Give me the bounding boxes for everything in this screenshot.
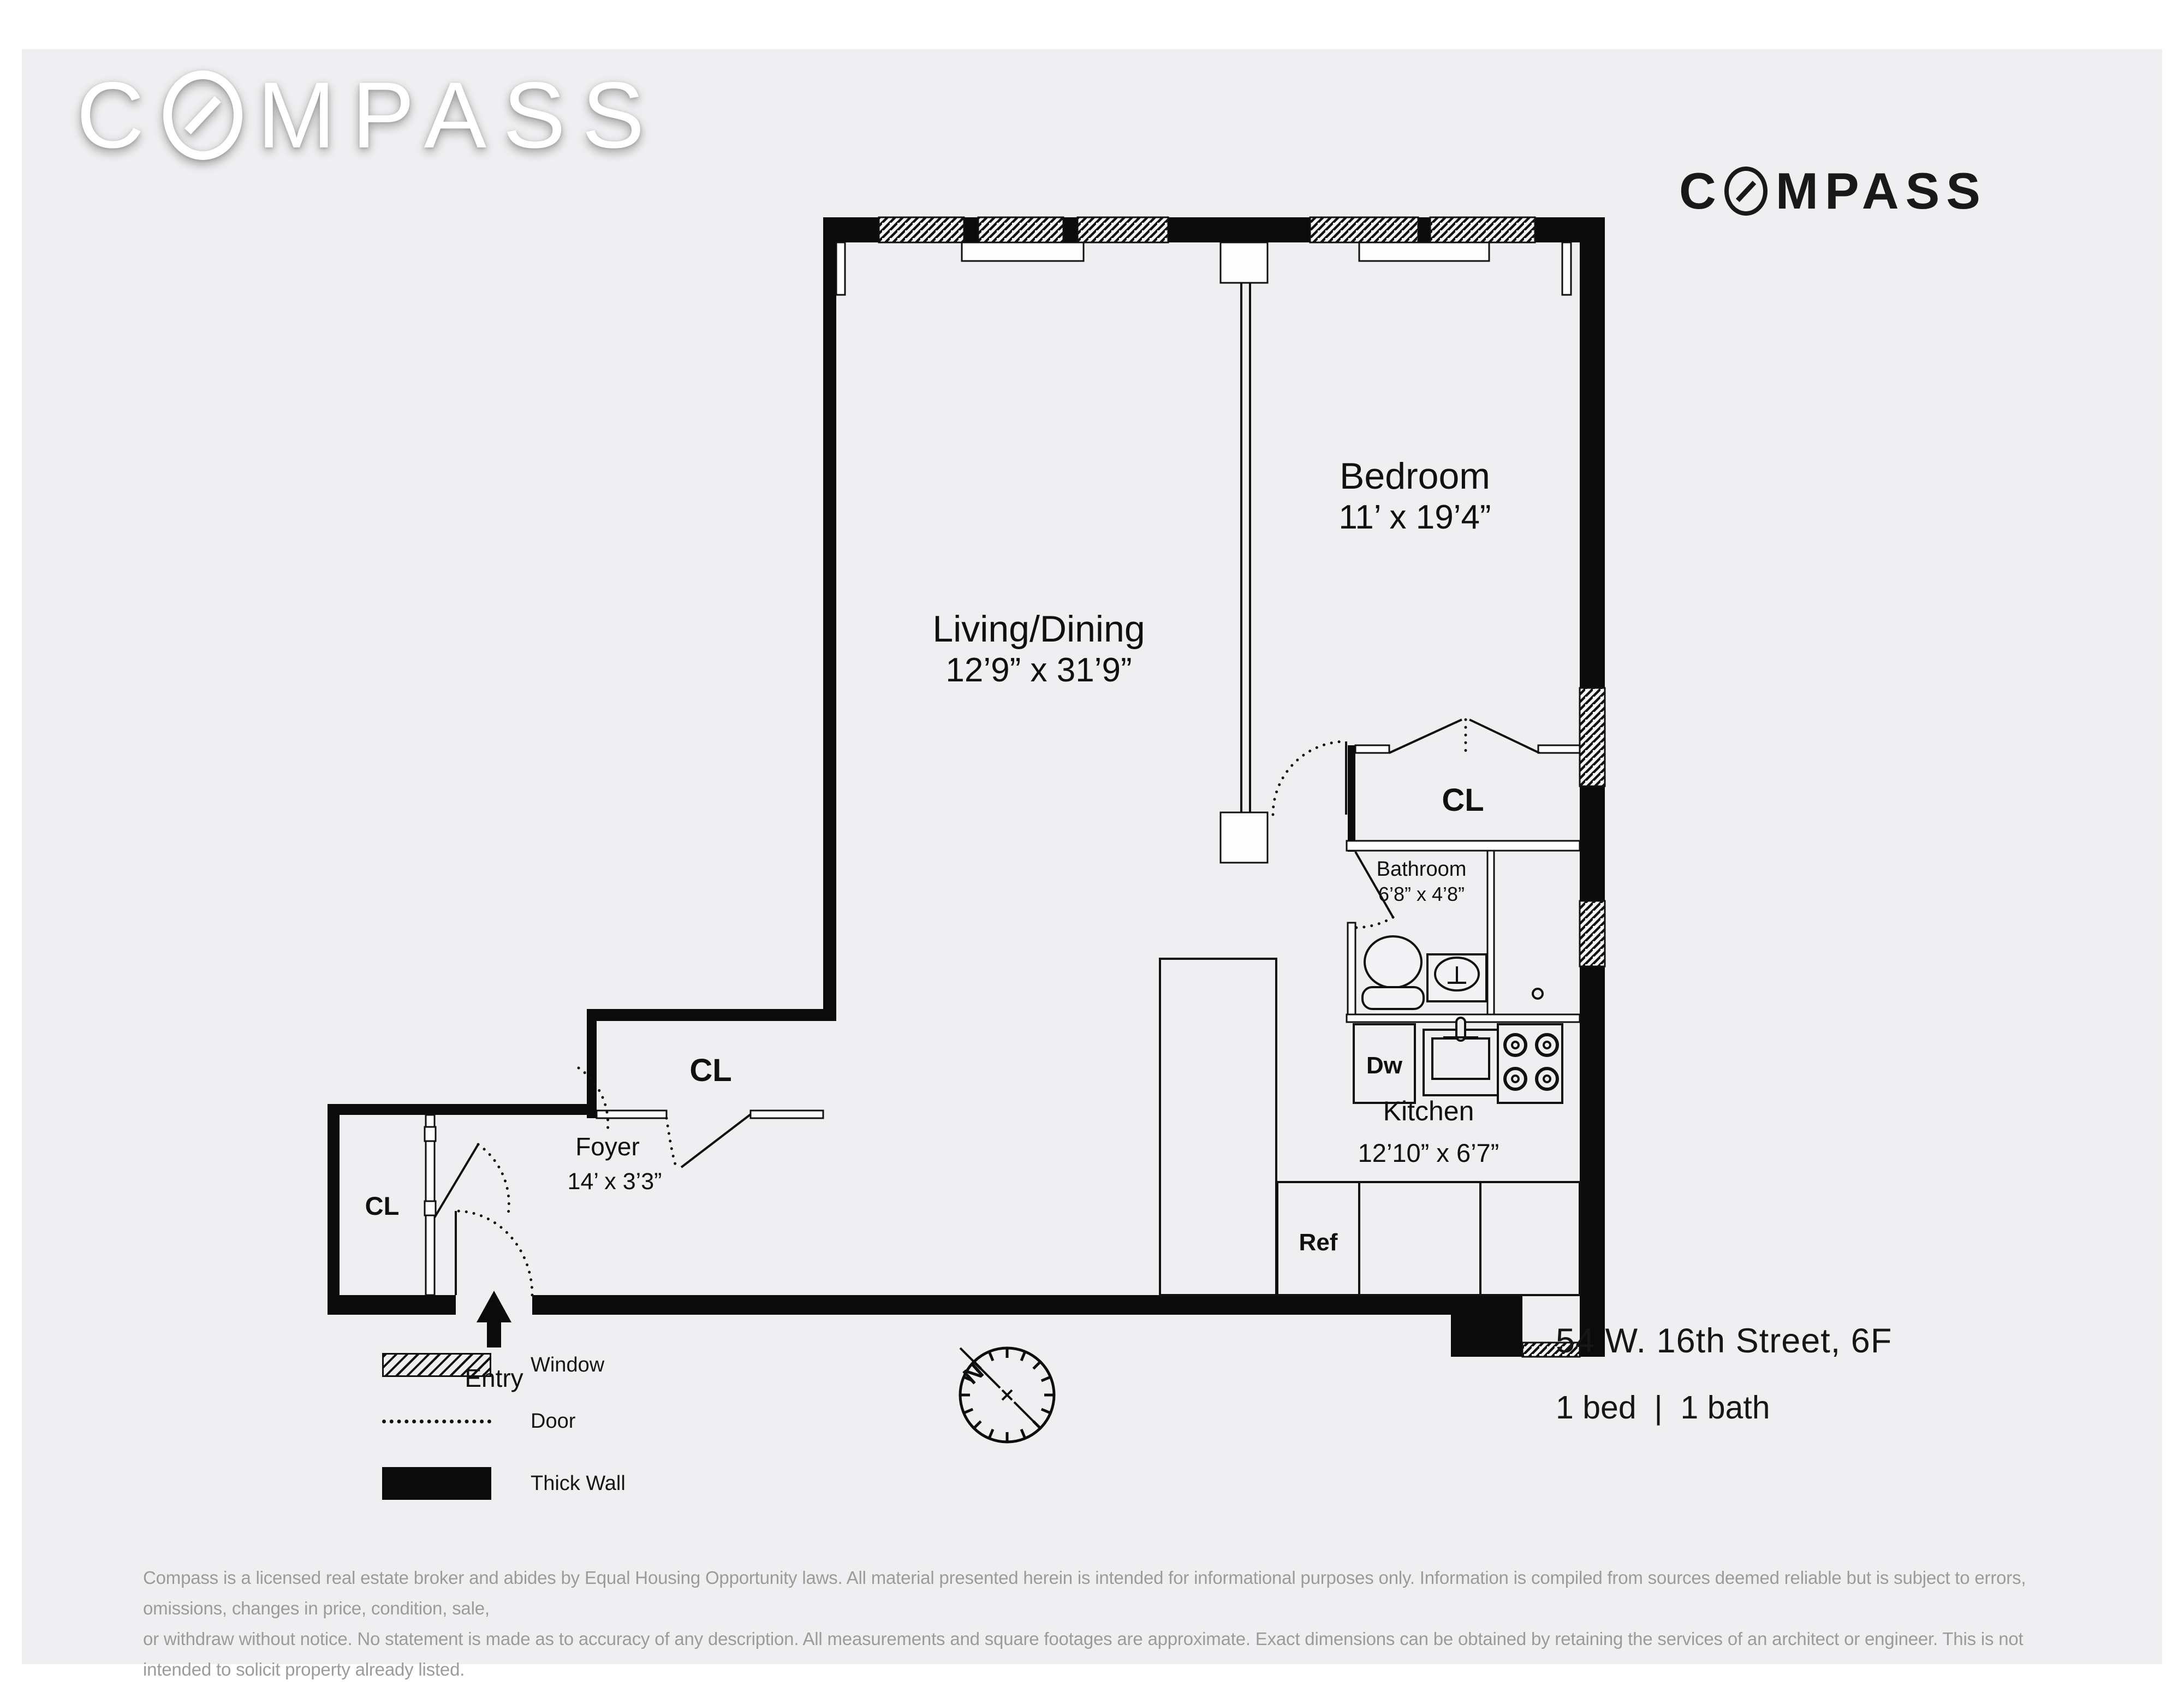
closet-door-swing bbox=[478, 1144, 509, 1218]
door-swatch-icon bbox=[382, 1420, 491, 1423]
legend-row-door: Door bbox=[382, 1410, 626, 1433]
bathroom-door-swing bbox=[1355, 917, 1393, 928]
logo-text-pre: C bbox=[1679, 162, 1723, 221]
legend-label: Thick Wall bbox=[531, 1472, 626, 1495]
foyer-dims: 14’ x 3’3” bbox=[568, 1168, 662, 1195]
window-icon bbox=[1078, 217, 1168, 242]
logo-text-pre: C bbox=[76, 61, 160, 169]
closet-bifold-leaf bbox=[1389, 720, 1462, 753]
floor-plan: Living/Dining 12’9” x 31’9” Bedroom 11’ … bbox=[317, 207, 1616, 1436]
bathroom-fixtures bbox=[1362, 936, 1543, 1009]
kitchen-dims: 12’10” x 6’7” bbox=[1358, 1138, 1499, 1167]
closet-bifold-leaf bbox=[1469, 720, 1539, 753]
closet-label: CL bbox=[1442, 782, 1484, 818]
living-room-label: Living/Dining bbox=[932, 608, 1145, 650]
kitchen-sink-basin bbox=[1432, 1038, 1489, 1079]
refrigerator-label: Ref bbox=[1299, 1229, 1338, 1256]
counter-peninsula bbox=[1160, 959, 1276, 1295]
window-icon bbox=[1430, 217, 1535, 242]
closet-door-leaf bbox=[435, 1144, 478, 1218]
compass-rose-icon: N bbox=[947, 1335, 1067, 1455]
bedroom-door-swing bbox=[1273, 741, 1346, 815]
window-icon bbox=[1580, 688, 1605, 786]
compass-logo-small: CMPASS bbox=[1679, 162, 1987, 221]
window-icon bbox=[1310, 217, 1418, 242]
listing-info: 54 W. 16th Street, 6F 1 bed | 1 bath bbox=[1556, 1321, 1892, 1426]
logo-text-post: MPASS bbox=[257, 61, 660, 169]
counter-box bbox=[1359, 1182, 1480, 1295]
listing-beds-baths: 1 bed | 1 bath bbox=[1556, 1389, 1892, 1426]
window-icon bbox=[879, 217, 964, 242]
entry-arrow-icon bbox=[477, 1291, 511, 1347]
toilet-tank bbox=[1362, 987, 1424, 1009]
compass-logo-large: CMPASS bbox=[76, 61, 661, 169]
foyer-label: Foyer bbox=[575, 1132, 640, 1161]
legend-row-thick-wall: Thick Wall bbox=[382, 1467, 626, 1500]
bathroom-label: Bathroom bbox=[1377, 858, 1467, 881]
room-labels: Living/Dining 12’9” x 31’9” Bedroom 11’ … bbox=[365, 455, 1499, 1392]
closet-label: CL bbox=[365, 1191, 400, 1220]
closet-label: CL bbox=[689, 1053, 731, 1088]
window-icon bbox=[978, 217, 1063, 242]
closet-door-swing bbox=[666, 1118, 676, 1166]
logo-text-post: MPASS bbox=[1776, 162, 1987, 221]
disclaimer-line-1: Compass is a licensed real estate broker… bbox=[143, 1563, 2054, 1624]
living-room-dims: 12’9” x 31’9” bbox=[945, 651, 1132, 689]
entry-door-swing bbox=[456, 1211, 532, 1295]
slashed-o-icon bbox=[163, 70, 242, 159]
logo-o-slash-icon bbox=[185, 96, 221, 134]
window-icon bbox=[1580, 901, 1605, 966]
bathroom-dims: 6’8” x 4’8” bbox=[1378, 883, 1465, 905]
bedroom-dims: 11’ x 19’4” bbox=[1338, 498, 1491, 536]
legend-row-window: Window bbox=[382, 1353, 626, 1377]
counter-box bbox=[1480, 1182, 1580, 1295]
listing-address: 54 W. 16th Street, 6F bbox=[1556, 1321, 1892, 1361]
dishwasher-label: Dw bbox=[1366, 1052, 1403, 1079]
toilet-icon bbox=[1365, 936, 1421, 988]
shower-drain-icon bbox=[1533, 989, 1543, 999]
legend-label: Door bbox=[531, 1410, 575, 1433]
logo-o-slash-icon bbox=[1735, 180, 1755, 201]
bedroom-label: Bedroom bbox=[1340, 455, 1490, 497]
slashed-o-icon bbox=[1724, 167, 1768, 215]
window-swatch-icon bbox=[382, 1353, 491, 1377]
closet-door-leaf bbox=[681, 1114, 751, 1167]
legend-label: Window bbox=[531, 1353, 604, 1377]
legend: Window Door Thick Wall bbox=[382, 1353, 626, 1525]
thick-wall-swatch-icon bbox=[382, 1467, 491, 1500]
disclaimer-line-2: or withdraw without notice. No statement… bbox=[143, 1624, 2054, 1685]
kitchen-label: Kitchen bbox=[1383, 1096, 1474, 1126]
disclaimer: Compass is a licensed real estate broker… bbox=[143, 1563, 2054, 1685]
